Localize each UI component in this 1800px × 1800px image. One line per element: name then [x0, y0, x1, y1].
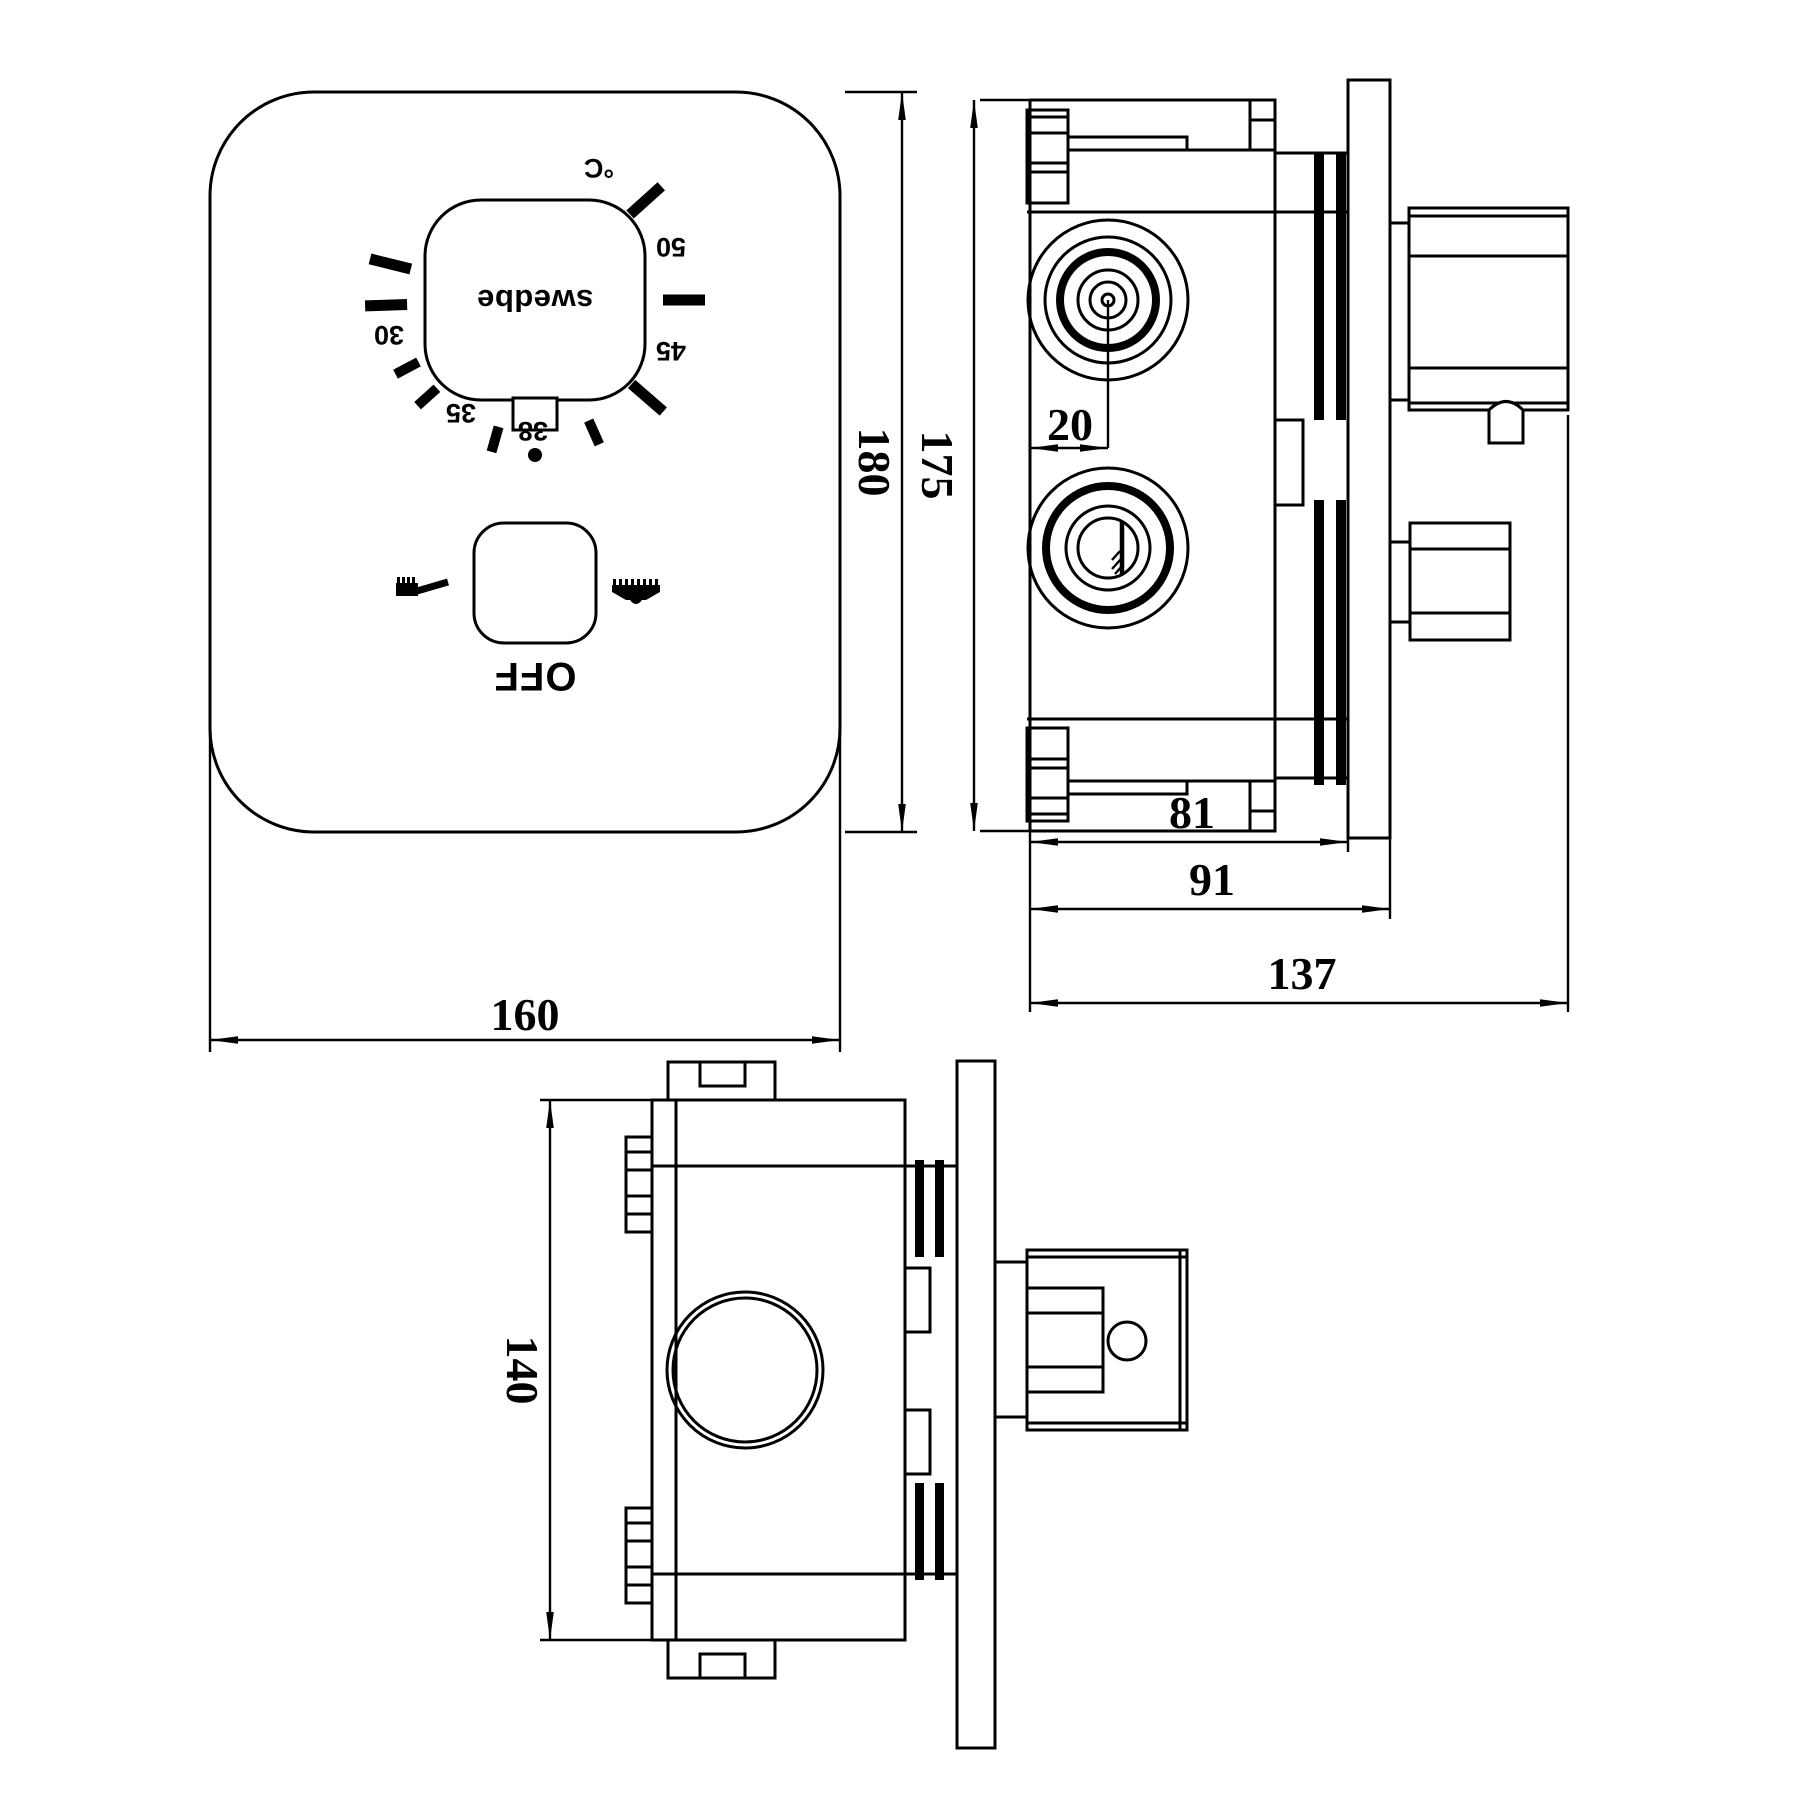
technical-drawing-page: swedbe °C 50 45 38 35 30 [0, 0, 1800, 1800]
hand-shower-icon [396, 577, 448, 596]
dim-body-height-label: 175 [912, 431, 963, 500]
seal-gaskets-bottom [915, 1160, 944, 1580]
dial-label-35: 35 [446, 398, 476, 428]
dial-unit-label: °C [584, 153, 614, 183]
dim-front-height-label: 180 [849, 428, 900, 497]
dim-front-width: 160 [210, 728, 840, 1052]
brand-logo: swedbe [477, 283, 594, 318]
dim-port-offset: 20 [1030, 399, 1108, 450]
dim-bottom-width-label: 140 [497, 1336, 548, 1405]
valve-technical-drawing: swedbe °C 50 45 38 35 30 [0, 0, 1800, 1800]
diverter-knob [474, 523, 596, 643]
overhead-shower-icon [612, 579, 660, 604]
seal-gaskets-side [1275, 153, 1348, 785]
dial-label-30: 30 [374, 320, 404, 350]
dial-label-45: 45 [656, 336, 686, 366]
side-view: 175 [912, 80, 1568, 1012]
handle-bottom [995, 1250, 1187, 1430]
wall-plate-side [1348, 80, 1390, 838]
dim-depth-to-plate-label: 91 [1189, 854, 1235, 905]
dim-bottom-width: 140 [497, 1100, 652, 1640]
port-bottom-circle [667, 1292, 823, 1448]
temperature-handle-side [1390, 208, 1568, 443]
off-label: OFF [494, 654, 577, 698]
handle-screw-hole [1108, 1322, 1146, 1360]
dim-port-offset-label: 20 [1047, 399, 1093, 450]
bottom-view: 140 [497, 1061, 1187, 1748]
diverter-handle-side [1390, 523, 1510, 640]
port-diverter [1028, 468, 1188, 628]
dim-body-height: 175 [912, 100, 1042, 831]
valve-body-bottom [626, 1062, 957, 1678]
trim-plate [210, 92, 840, 832]
front-view: swedbe °C 50 45 38 35 30 [210, 92, 917, 1052]
diverter-control: OFF [396, 523, 660, 698]
wall-plate-bottom [957, 1061, 995, 1748]
dial-label-50: 50 [656, 232, 686, 262]
dim-front-height: 180 [845, 92, 917, 832]
dim-body-depth-label: 81 [1169, 787, 1215, 838]
handle-detent-bump [1489, 402, 1523, 444]
dim-depth-to-plate: 91 [1030, 838, 1390, 919]
mounting-tab [1275, 420, 1303, 505]
dim-overall-depth-label: 137 [1268, 948, 1337, 999]
temperature-dial: swedbe °C 50 45 38 35 30 [365, 153, 705, 462]
dim-front-width-label: 160 [491, 989, 560, 1040]
valve-body-side [1027, 100, 1348, 831]
dial-38-safety-dot [528, 448, 542, 462]
dial-label-38: 38 [518, 416, 548, 446]
